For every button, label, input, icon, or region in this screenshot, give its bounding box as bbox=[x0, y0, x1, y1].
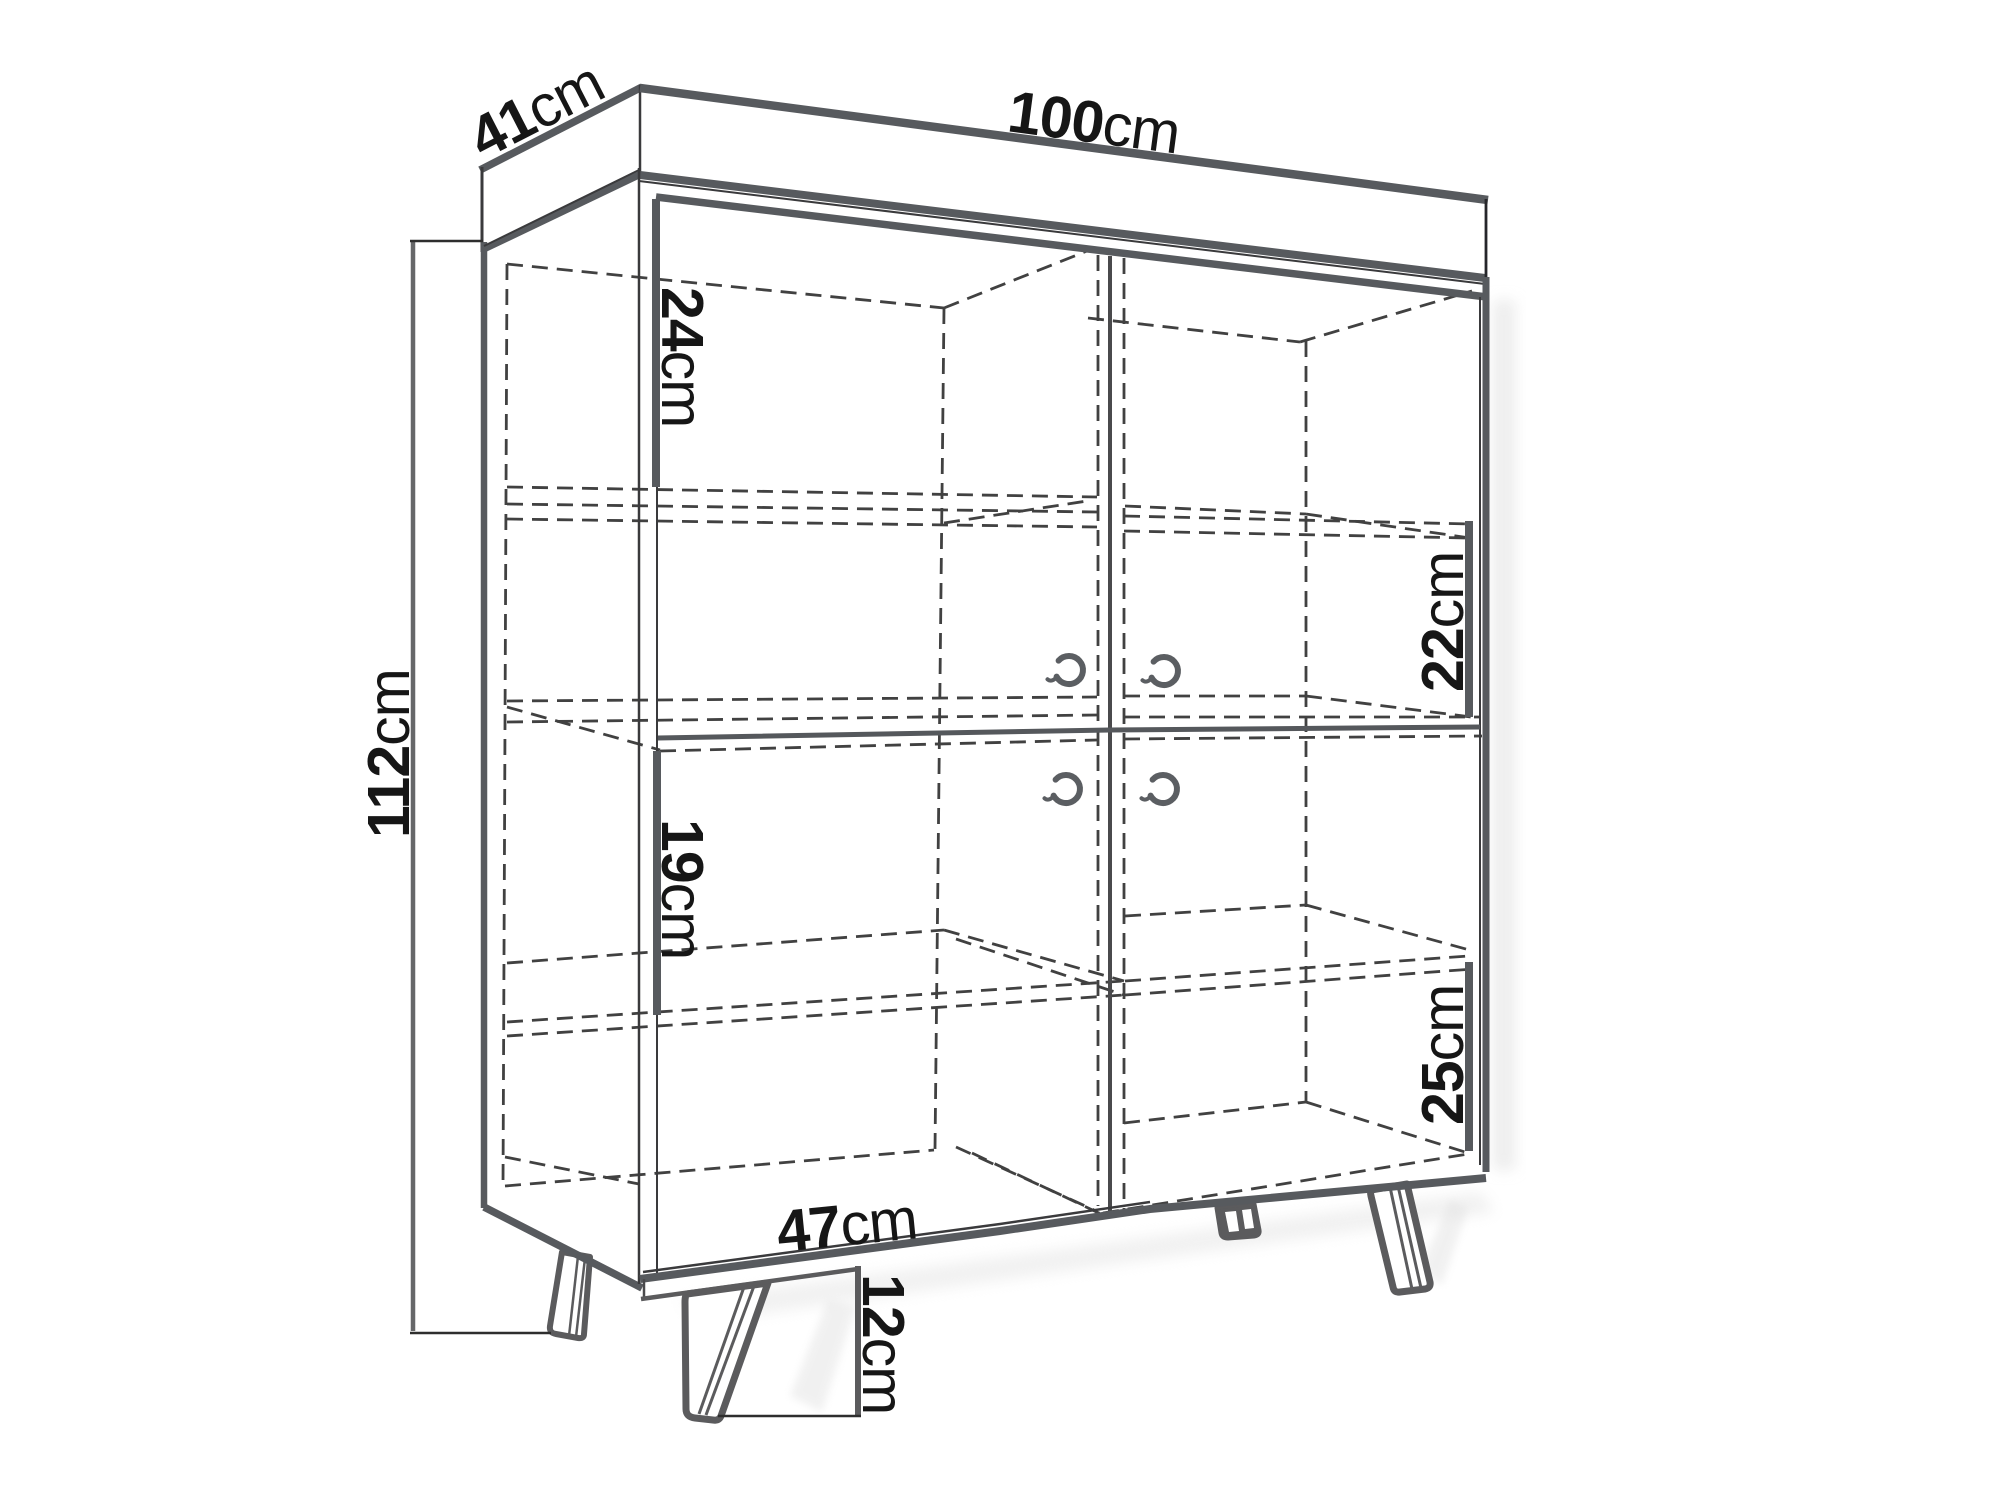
svg-text:24cm: 24cm bbox=[649, 287, 715, 427]
svg-text:25cm: 25cm bbox=[1410, 985, 1476, 1125]
svg-text:112cm: 112cm bbox=[356, 669, 422, 838]
svg-text:47cm: 47cm bbox=[774, 1185, 920, 1265]
svg-text:12cm: 12cm bbox=[850, 1274, 916, 1414]
svg-text:22cm: 22cm bbox=[1410, 552, 1476, 692]
svg-text:19cm: 19cm bbox=[649, 819, 715, 959]
